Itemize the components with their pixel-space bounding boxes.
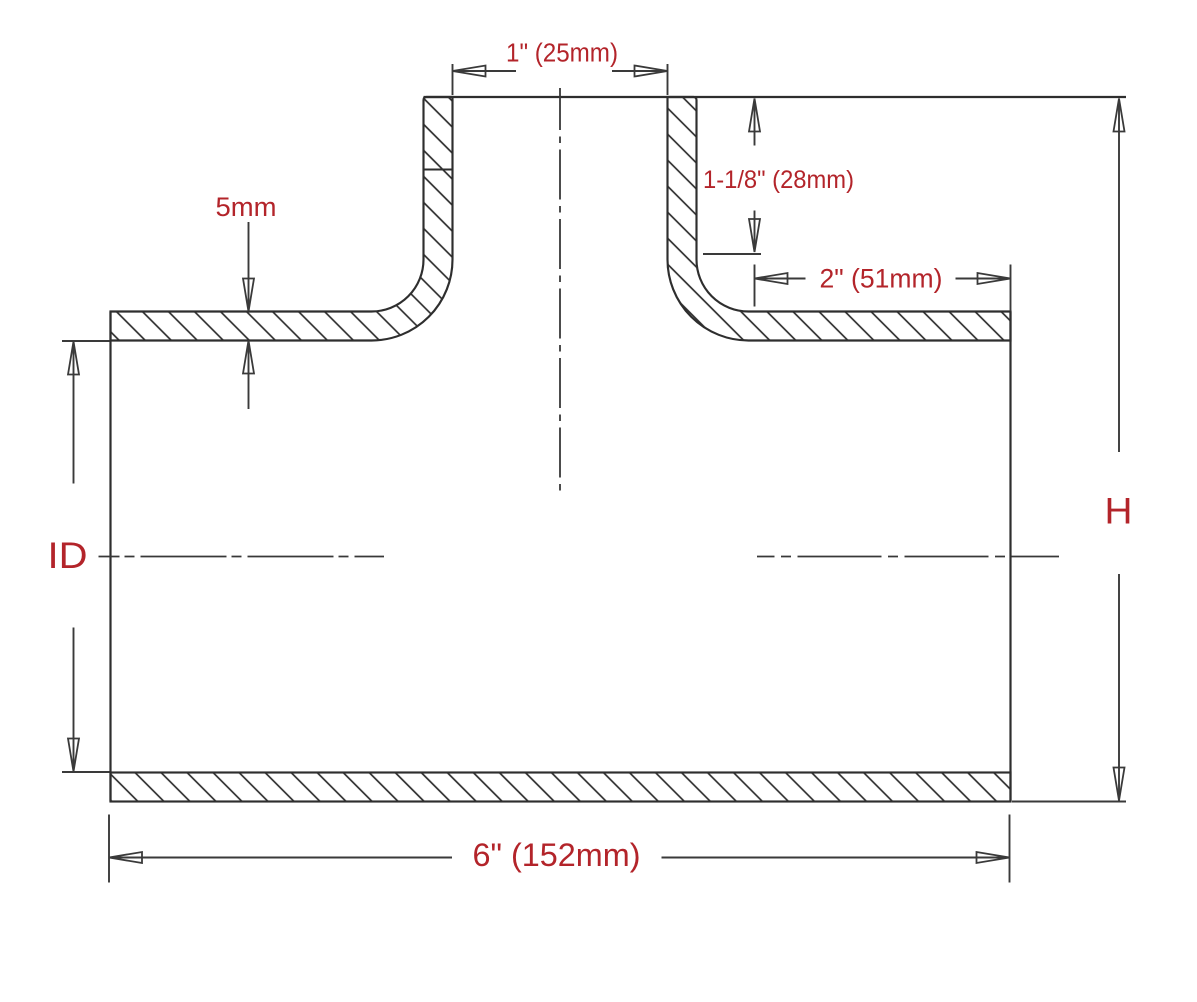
svg-text:5mm: 5mm xyxy=(216,192,277,222)
svg-text:1" (25mm): 1" (25mm) xyxy=(506,40,618,68)
svg-text:ID: ID xyxy=(48,535,88,576)
svg-text:H: H xyxy=(1105,491,1133,532)
svg-text:1-1/8" (28mm): 1-1/8" (28mm) xyxy=(703,166,854,194)
svg-text:2" (51mm): 2" (51mm) xyxy=(820,264,943,294)
svg-text:6" (152mm): 6" (152mm) xyxy=(473,837,641,873)
